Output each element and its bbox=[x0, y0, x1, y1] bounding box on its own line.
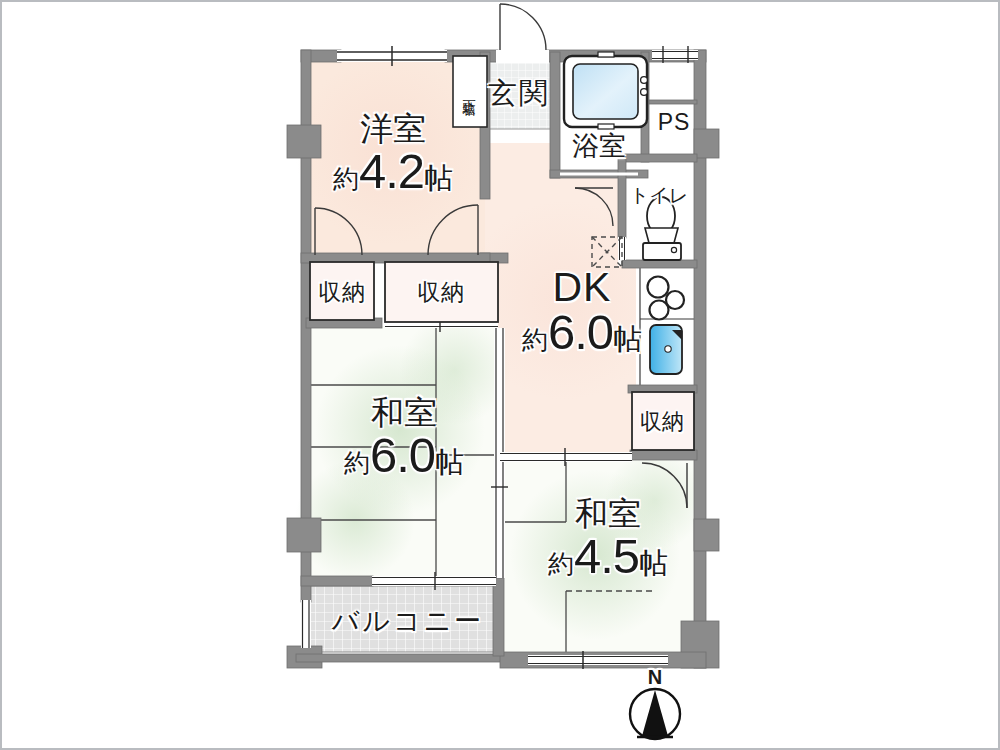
room-label-washitsu6: 和室 約6.0帖 bbox=[344, 395, 464, 480]
storage-label-3: 収納 bbox=[640, 407, 684, 437]
storage-label-2: 収納 bbox=[417, 277, 465, 308]
compass-north-label: N bbox=[648, 666, 662, 689]
bathroom-label: 浴室 bbox=[572, 128, 626, 164]
storage-label-1: 収納 bbox=[318, 277, 366, 308]
toilet-label: トイレ bbox=[630, 183, 688, 209]
room-label-dk: DK 約6.0帖 bbox=[522, 267, 642, 357]
room-label-washitsu45: 和室 約4.5帖 bbox=[548, 496, 668, 581]
ps-label: PS bbox=[658, 109, 691, 136]
getabako-label: 下駄箱 bbox=[463, 91, 476, 94]
balcony-label: バルコニー bbox=[332, 603, 485, 639]
floor-plan-canvas: 洋室 約4.2帖 DK 約6.0帖 和室 約6.0帖 和室 約4.5帖 玄関 下… bbox=[0, 0, 1000, 750]
sink-icon bbox=[650, 325, 682, 374]
bathtub-icon bbox=[564, 52, 647, 129]
room-label-youshitsu: 洋室 約4.2帖 bbox=[333, 111, 453, 196]
entrance-door-swing-icon bbox=[500, 4, 546, 50]
genkan-label: 玄関 bbox=[488, 74, 550, 114]
compass-icon bbox=[630, 689, 680, 739]
